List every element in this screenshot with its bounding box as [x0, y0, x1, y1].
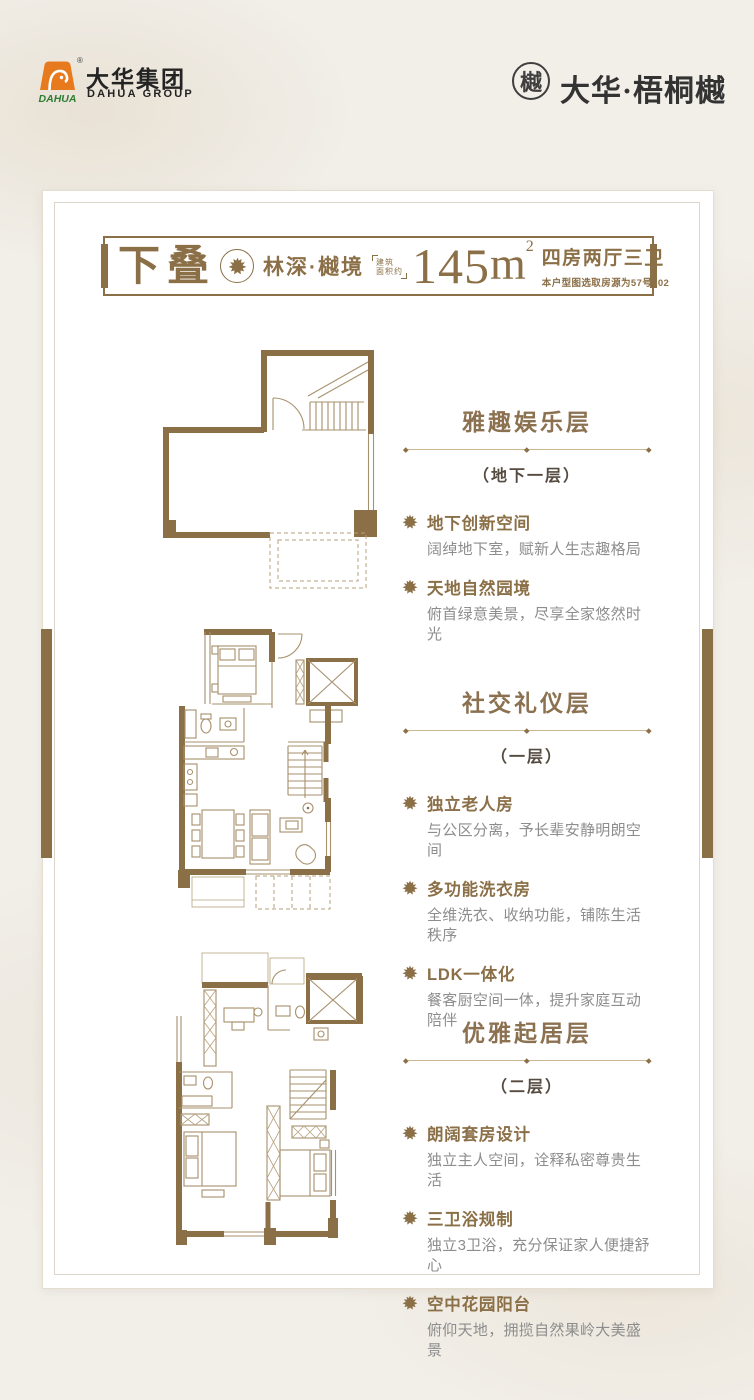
bullet-leaf-icon	[402, 965, 418, 981]
unit-type: 下叠	[118, 245, 216, 287]
bullet-desc: 与公区分离，予长辈安静明朗空间	[427, 821, 652, 861]
bullet-desc: 阔绰地下室，赋新人生志趣格局	[427, 540, 652, 560]
section-social: 社交礼仪层 （一层） 独立老人房 与公区分离，予长辈安静明朗空间 多功能洗衣房 …	[402, 684, 652, 1046]
bullet-title: 空中花园阳台	[427, 1291, 531, 1315]
bullet-leaf-icon	[402, 1295, 418, 1311]
dahua-logo-mark-icon: DAHUA	[37, 58, 79, 104]
bullet-leaf-icon	[402, 1125, 418, 1141]
section-subtitle: （二层）	[402, 1073, 652, 1097]
section-title: 社交礼仪层	[402, 684, 652, 718]
section-title: 优雅起居层	[402, 1014, 652, 1048]
bullet-title: 独立老人房	[427, 791, 514, 815]
title-banner: 下叠 林深·樾境 建筑 面积约 145 m 2 四房两厅三卫 本户型图选取房源为…	[103, 236, 654, 296]
area-exponent: 2	[526, 239, 534, 255]
side-bar-right	[702, 629, 713, 858]
bullet-leaf-icon	[402, 514, 418, 530]
bullet-leaf-icon	[402, 795, 418, 811]
section-subtitle: （地下一层）	[402, 462, 652, 486]
rooms-label: 四房两厅三卫	[542, 243, 639, 270]
bullet-desc: 全维洗衣、收纳功能，铺陈生活秩序	[427, 906, 652, 946]
divider	[404, 448, 650, 452]
bullet-title: 朗阔套房设计	[427, 1121, 531, 1145]
bullet-item: 三卫浴规制 独立3卫浴，充分保证家人便捷舒心	[402, 1206, 652, 1276]
bullet-desc: 俯首绿意美景，尽享全家悠然时光	[427, 605, 652, 645]
area-note: 建筑 面积约	[372, 255, 407, 279]
bullet-leaf-icon	[402, 579, 418, 595]
divider	[404, 1059, 650, 1063]
seal-character: 樾	[520, 65, 542, 97]
bullet-title: 天地自然园境	[427, 575, 531, 599]
poster: DAHUA ® 大华集团 DAHUA GROUP 樾 大华·梧桐樾 下叠 林深·…	[0, 0, 754, 1400]
floorplan-basement	[150, 346, 398, 596]
bullet-desc: 独立主人空间，诠释私密尊贵生活	[427, 1151, 652, 1191]
bullet-title: 三卫浴规制	[427, 1206, 514, 1230]
leaf-icon	[228, 257, 247, 276]
bullet-leaf-icon	[402, 1210, 418, 1226]
floorplan-first-floor	[168, 622, 410, 912]
floorplan-second-floor	[168, 950, 413, 1245]
source-note: 本户型图选取房源为57号102	[542, 275, 639, 289]
section-subtitle: （一层）	[402, 743, 652, 767]
area-number: 145	[412, 241, 490, 291]
bullet-desc: 俯仰天地，拥揽自然果岭大美盛景	[427, 1321, 652, 1361]
area-note-line1: 建筑	[376, 258, 403, 267]
bullet-title: LDK一体化	[427, 961, 515, 985]
bullet-item: 地下创新空间 阔绰地下室，赋新人生志趣格局	[402, 510, 652, 560]
bullet-item: 空中花园阳台 俯仰天地，拥揽自然果岭大美盛景	[402, 1291, 652, 1361]
area-unit: m	[490, 241, 526, 287]
project-seal-icon: 樾	[512, 62, 550, 100]
section-living: 优雅起居层 （二层） 朗阔套房设计 独立主人空间，诠释私密尊贵生活 三卫浴规制 …	[402, 1014, 652, 1376]
dahua-mark-text: DAHUA	[39, 93, 77, 104]
banner-bar-right	[650, 244, 657, 288]
series-name: 林深·樾境	[263, 251, 364, 281]
divider	[404, 729, 650, 733]
project-name: 大华·梧桐樾	[560, 66, 726, 110]
side-bar-left	[41, 629, 52, 858]
section-entertainment: 雅趣娱乐层 （地下一层） 地下创新空间 阔绰地下室，赋新人生志趣格局 天地自然园…	[402, 403, 652, 660]
bullet-item: 多功能洗衣房 全维洗衣、收纳功能，铺陈生活秩序	[402, 876, 652, 946]
bullet-title: 多功能洗衣房	[427, 876, 531, 900]
leaf-circle-icon	[220, 249, 254, 283]
area-value: 145 m 2	[412, 241, 534, 291]
bullet-title: 地下创新空间	[427, 510, 531, 534]
bullet-desc: 独立3卫浴，充分保证家人便捷舒心	[427, 1236, 652, 1276]
banner-bar-left	[101, 244, 108, 288]
dahua-logo-en: DAHUA GROUP	[87, 88, 194, 100]
area-note-line2: 面积约	[376, 267, 403, 276]
registered-icon: ®	[77, 56, 83, 65]
section-title: 雅趣娱乐层	[402, 403, 652, 437]
bullet-item: 天地自然园境 俯首绿意美景，尽享全家悠然时光	[402, 575, 652, 645]
bullet-item: 独立老人房 与公区分离，予长辈安静明朗空间	[402, 791, 652, 861]
bullet-item: 朗阔套房设计 独立主人空间，诠释私密尊贵生活	[402, 1121, 652, 1191]
bullet-leaf-icon	[402, 880, 418, 896]
